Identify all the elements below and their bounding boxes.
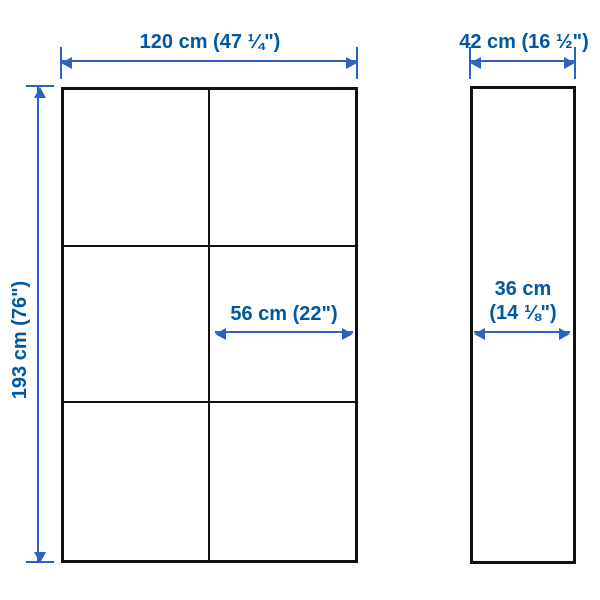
overall-width-arrow-icon — [61, 60, 357, 62]
dimension-diagram: 120 cm (47 ¼") 42 cm (16 ½") 193 cm (76"… — [0, 0, 600, 600]
overall-height-arrow-icon — [37, 87, 39, 563]
inner-depth-label-line1: 36 cm — [489, 277, 556, 301]
inner-width-label: 56 cm (22") — [230, 302, 337, 326]
extension-tick — [26, 561, 54, 563]
extension-tick — [356, 47, 358, 79]
cabinet-cell — [64, 247, 210, 404]
cabinet-cell — [210, 90, 356, 247]
inner-depth-label: 36 cm (14 ⅛") — [489, 277, 556, 325]
extension-tick — [574, 47, 576, 79]
extension-tick — [26, 85, 54, 87]
cabinet-cell — [210, 403, 356, 560]
inner-width-arrow-icon — [215, 331, 353, 333]
overall-width-label: 120 cm (47 ¼") — [140, 30, 281, 54]
overall-depth-label: 42 cm (16 ½") — [459, 30, 589, 54]
extension-tick — [469, 47, 471, 79]
inner-depth-label-line2: (14 ⅛") — [489, 301, 556, 325]
cabinet-cell — [64, 90, 210, 247]
inner-depth-arrow-icon — [474, 331, 570, 333]
cabinet-cell — [64, 403, 210, 560]
extension-tick — [60, 47, 62, 79]
overall-depth-arrow-icon — [470, 60, 575, 62]
side-view-outline — [470, 86, 576, 564]
overall-height-label: 193 cm (76") — [8, 281, 32, 399]
